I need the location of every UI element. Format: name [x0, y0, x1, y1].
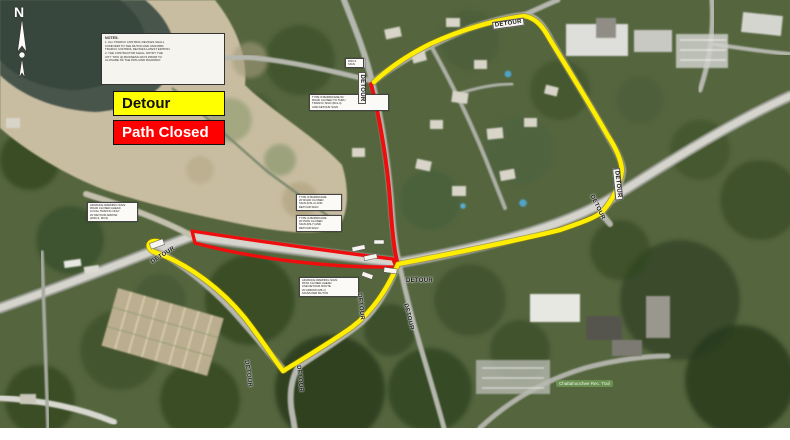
callout-small: W20-3 SIGN	[345, 58, 364, 68]
callout-north: TYPE III BARRICADE W/ ROAD CLOSED TO THR…	[309, 94, 389, 111]
callout-mid-lower: TYPE III BARRICADE W/ PATH CLOSED SIGN (…	[296, 215, 342, 232]
bottom-margin	[0, 428, 790, 440]
legend-detour-label: Detour	[122, 95, 170, 112]
legend-path-closed: Path Closed	[113, 120, 225, 145]
park-label: Chattahoochee Rec. Trail	[556, 380, 613, 387]
north-label: N	[14, 4, 24, 20]
notes-title: NOTES:	[105, 36, 221, 40]
detour-label-center: DETOUR	[406, 278, 433, 284]
notes-line: CLOSURE OF THE PATH AND ROADWAY.	[105, 59, 221, 63]
detour-map-figure: N NOTES: 1. ALL TRAFFIC CONTROL DEVICES …	[0, 0, 790, 440]
notes-box: NOTES: 1. ALL TRAFFIC CONTROL DEVICES SH…	[101, 33, 225, 85]
callout-left: ADVANCE WARNING SIGN: ROAD CLOSED AHEAD …	[87, 202, 138, 222]
detour-label-north: DETOUR	[358, 72, 366, 104]
callout-south: ADVANCE WARNING SIGN: PATH CLOSED AHEAD …	[299, 277, 359, 297]
legend-detour: Detour	[113, 91, 225, 116]
legend-path-closed-label: Path Closed	[122, 124, 209, 141]
callout-mid-upper: TYPE III BARRICADE W/ ROAD CLOSED SIGN (…	[296, 194, 342, 211]
